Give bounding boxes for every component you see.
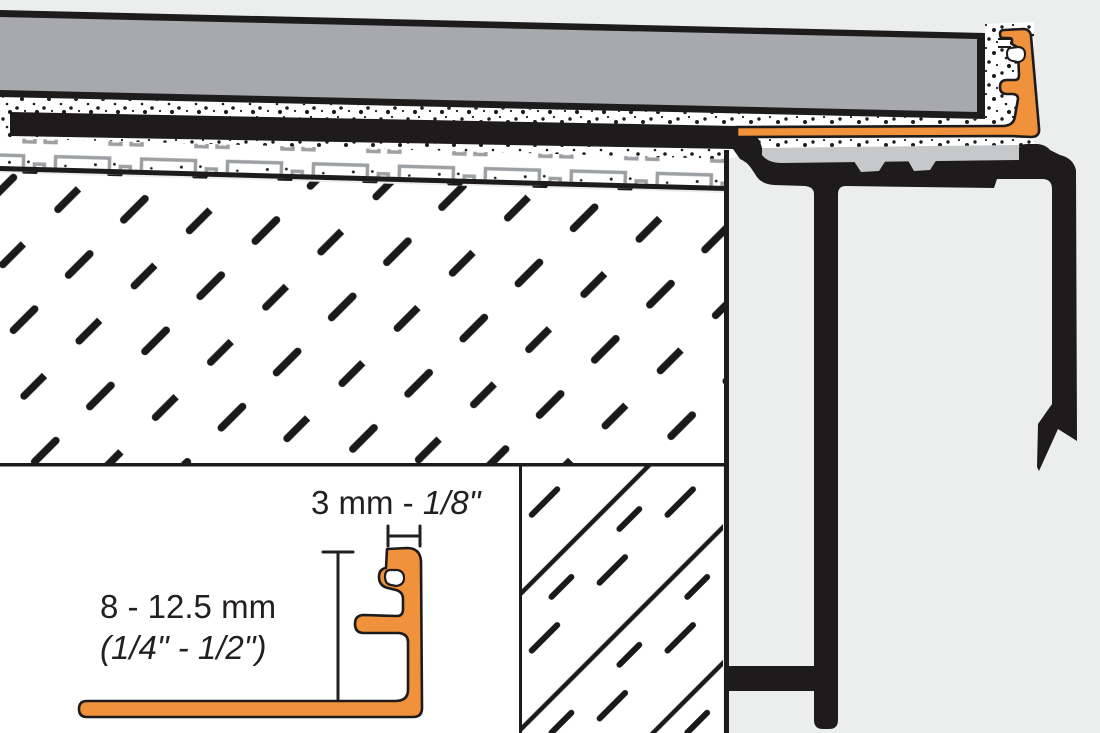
inset-profile-anchor-pocket	[385, 570, 404, 586]
profile-anchor-pocket	[1007, 47, 1025, 62]
technical-drawing-canvas: 3 mm - 1/8" 8 - 12.5 mm (1/4" - 1/2")	[0, 0, 1100, 733]
height-dimension-label-mm: 8 - 12.5 mm	[100, 590, 276, 625]
substrate-hatch-layer	[0, 173, 724, 464]
width-dimension-label: 3 mm - 1/8"	[311, 486, 480, 521]
height-dimension-label-inches: (1/4" - 1/2")	[100, 631, 266, 666]
profile-tile-slot	[999, 40, 1010, 46]
substrate-boundary-line	[0, 463, 724, 467]
substrate-right-edge-line	[724, 150, 729, 733]
inset-right-border	[519, 464, 522, 733]
width-dimension-mm: 3 mm -	[311, 484, 423, 521]
width-dimension-inches: 1/8"	[423, 484, 481, 521]
